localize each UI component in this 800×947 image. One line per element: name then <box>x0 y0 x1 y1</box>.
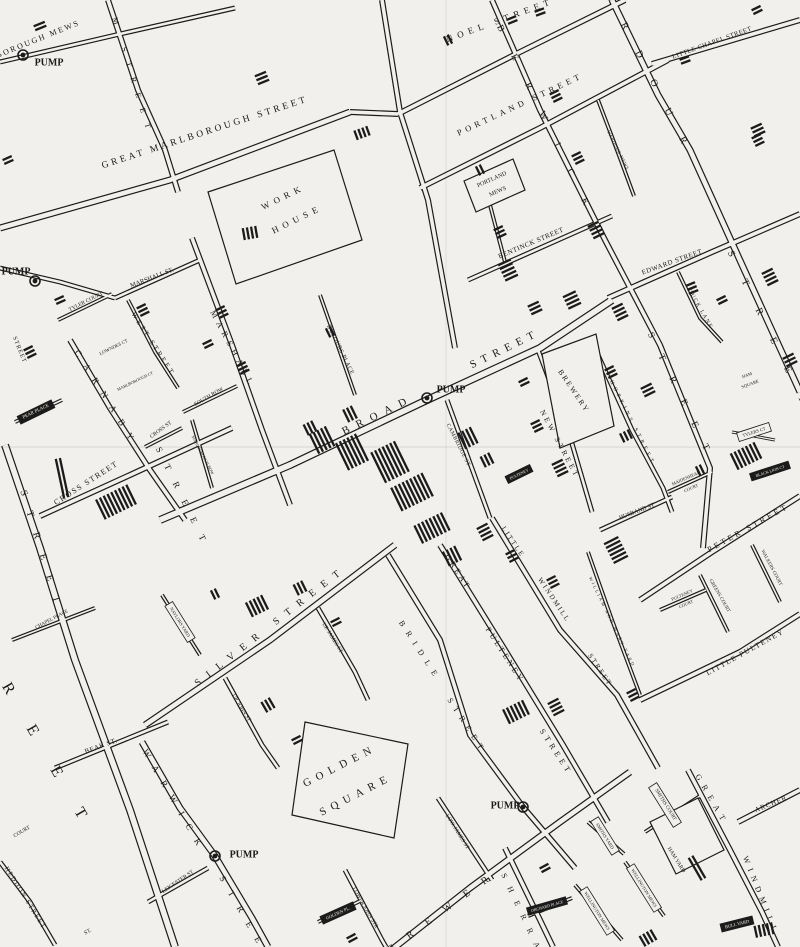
pump-label: PUMP <box>2 267 31 278</box>
pump-dot <box>213 854 218 859</box>
label-text: PUMP <box>230 850 259 861</box>
pump-label: PUMP <box>230 850 259 861</box>
pump-label: PUMP <box>35 58 64 69</box>
pump-dot <box>21 53 26 58</box>
label-text: PUMP <box>437 385 466 396</box>
snow-cholera-map: BOROUGH MEWSPUMPM STREETGREAT MARLBOROUG… <box>0 0 800 947</box>
pump-label: PUMP <box>437 385 466 396</box>
pump-label: PUMP <box>491 801 520 812</box>
map-canvas: BOROUGH MEWSPUMPM STREETGREAT MARLBOROUG… <box>0 0 800 947</box>
street-fill <box>350 112 398 114</box>
pump-dot <box>521 805 526 810</box>
pump-dot <box>425 396 430 401</box>
label-text: PUMP <box>491 801 520 812</box>
label-text: PUMP <box>2 267 31 278</box>
pump-dot <box>33 279 38 284</box>
label-text: PUMP <box>35 58 64 69</box>
